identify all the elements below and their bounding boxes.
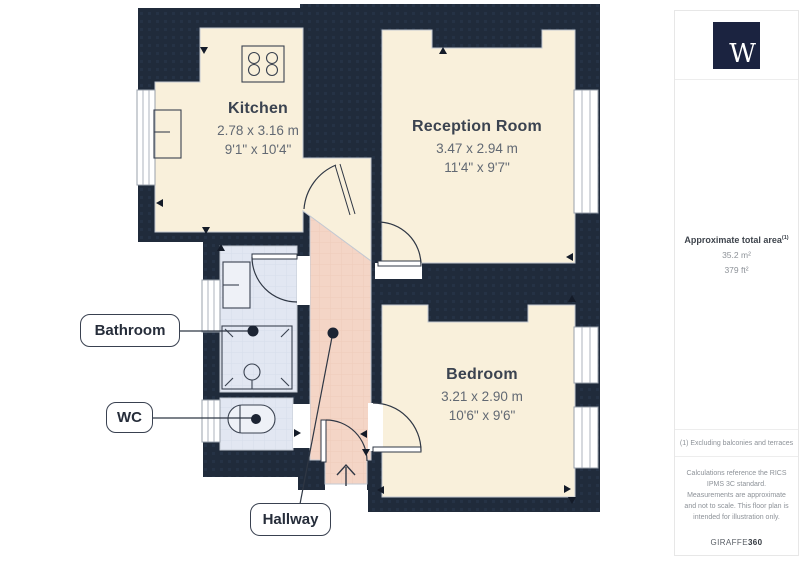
brand-name: GIRAFFE xyxy=(710,538,747,547)
stove-icon xyxy=(242,46,284,82)
sink-icon xyxy=(223,262,250,308)
total-area-section: Approximate total area(1) 35.2 m² 379 ft… xyxy=(675,80,798,429)
disclaimer-text: Calculations reference the RICS IPMS 3C … xyxy=(683,469,790,523)
disclaimer-section: Calculations reference the RICS IPMS 3C … xyxy=(675,457,798,555)
logo-section: W xyxy=(675,11,798,80)
callout-bathroom: Bathroom xyxy=(80,314,180,347)
total-area-imperial: 379 ft² xyxy=(724,265,748,275)
total-area-metric: 35.2 m² xyxy=(722,250,751,260)
giraffe360-brand: GIRAFFE360 xyxy=(683,537,790,549)
total-area-title: Approximate total area(1) xyxy=(684,235,788,245)
brand-suffix: 360 xyxy=(748,538,763,547)
bedroom-floor xyxy=(382,305,575,497)
reception-floor xyxy=(382,30,575,263)
floorplan-page: Kitchen 2.78 x 3.16 m 9'1" x 10'4" Recep… xyxy=(0,0,800,566)
total-area-note-ref: (1) xyxy=(782,235,789,241)
total-area-title-text: Approximate total area xyxy=(684,235,782,245)
callout-hallway: Hallway xyxy=(250,503,331,536)
info-panel: W Approximate total area(1) 35.2 m² 379 … xyxy=(674,10,799,556)
hallway-floor xyxy=(310,216,371,484)
brand-logo: W xyxy=(713,22,760,69)
brand-logo-letter: W xyxy=(729,40,756,69)
callout-wc: WC xyxy=(106,402,153,433)
footnote: (1) Excluding balconies and terraces xyxy=(675,430,798,458)
